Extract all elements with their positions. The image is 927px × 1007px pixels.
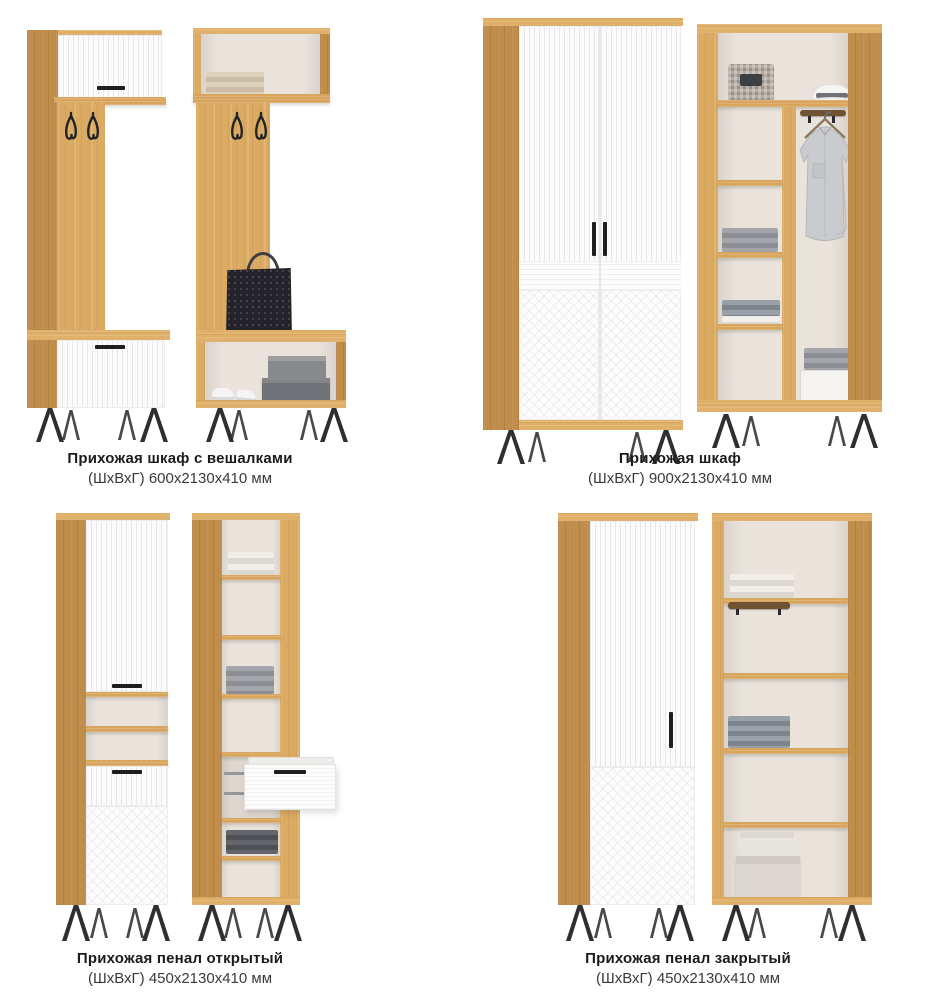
hairpin-leg: [820, 908, 838, 938]
open-niche: [86, 692, 168, 766]
hanging-shirt-illustration: [792, 108, 858, 276]
hanging-rail: [728, 602, 790, 609]
open-shelf-interior: [201, 34, 320, 94]
hairpin-leg: [712, 414, 740, 448]
cabinet-top-edge: [193, 28, 330, 34]
wardrobe-bottom: [697, 400, 882, 412]
storage-box: [740, 832, 794, 858]
hairpin-leg: [722, 905, 750, 941]
product-title: Прихожая шкаф с вешалками: [20, 450, 340, 468]
niche-shelf: [86, 760, 168, 766]
folded-towels: [804, 348, 850, 370]
bench-right-wall: [336, 342, 346, 400]
shelf: [222, 575, 280, 580]
drawer-rail: [224, 792, 250, 795]
sneaker: [212, 388, 234, 400]
product-dimensions: (ШхВхГ) 600х2130х410 мм: [20, 470, 340, 488]
hairpin-leg: [126, 908, 144, 938]
door-pattern-right: [601, 290, 681, 420]
vertical-divider: [782, 107, 796, 400]
shelf: [724, 673, 848, 679]
pulled-out-drawer: [244, 764, 336, 810]
open-drawer-top: [248, 757, 334, 768]
bench-top: [196, 330, 346, 342]
shelf: [222, 818, 280, 823]
hairpin-leg: [274, 905, 302, 941]
bench-interior: [205, 342, 336, 400]
bench-side: [27, 340, 57, 408]
hat-crown: [812, 84, 852, 102]
wicker-basket: [728, 64, 774, 101]
product-card-cabinet-open: Прихожая пенал открытый (ШхВхГ) 450х2130…: [0, 0, 927, 1007]
bench-bottom: [196, 400, 346, 408]
cabinet-left-side: [192, 520, 222, 897]
drawer-handle: [95, 345, 125, 349]
hairpin-leg: [748, 908, 766, 938]
wardrobe-side-panel: [483, 26, 519, 430]
hairpin-leg: [497, 430, 525, 464]
cabinet-right-stile: [280, 520, 300, 905]
cabinet-top-edge: [58, 30, 162, 35]
hairpin-leg: [118, 410, 136, 440]
wardrobe-top-edge: [697, 24, 882, 33]
shelf: [718, 252, 782, 258]
hat-band: [816, 93, 848, 98]
product-dimensions: (ШхВхГ) 450х2130х410 мм: [480, 970, 896, 988]
product-title: Прихожая пенал открытый: [20, 950, 340, 968]
drawer-rail: [224, 772, 250, 775]
product-card-wardrobe: Прихожая шкаф (ШхВхГ) 900х2130х410 мм: [0, 0, 927, 1007]
hairpin-leg: [36, 408, 64, 442]
cabinet-top-edge: [56, 513, 170, 520]
hairpin-leg: [320, 408, 348, 442]
storage-box: [268, 356, 326, 380]
product-dimensions: (ШхВхГ) 450х2130х410 мм: [20, 970, 340, 988]
hairpin-leg: [828, 416, 846, 446]
drawer-cavity: [222, 752, 280, 818]
cabinet-bottom: [192, 897, 300, 905]
canopy-shelf: [54, 97, 166, 105]
cabinet-left-wall: [193, 34, 201, 100]
product-card-wardrobe-with-hooks: Прихожая шкаф с вешалками (ШхВхГ) 600х21…: [0, 0, 927, 1007]
drawer-front: [86, 766, 168, 806]
hairpin-leg: [62, 410, 80, 440]
door-gap: [599, 26, 601, 420]
shelf: [724, 822, 848, 828]
cabinet-side-panel: [27, 30, 58, 102]
cabinet-left-wall: [712, 521, 724, 897]
coat-hook-icon: [62, 110, 80, 148]
panel-side: [27, 102, 57, 335]
bag-handle: [246, 252, 280, 275]
hairpin-leg: [838, 905, 866, 941]
hairpin-leg: [566, 905, 594, 941]
hairpin-leg: [666, 905, 694, 941]
hairpin-leg: [206, 408, 234, 442]
hanging-rod: [800, 110, 846, 116]
coat-panel: [196, 103, 270, 332]
shelf: [724, 748, 848, 754]
white-box: [800, 370, 854, 402]
hairpin-leg: [650, 908, 668, 938]
cabinet-top-edge: [558, 513, 698, 521]
hairpin-leg: [594, 908, 612, 938]
bench-top: [27, 330, 170, 340]
storage-box: [262, 378, 330, 400]
folded-clothes: [722, 228, 778, 252]
shelf: [222, 752, 280, 757]
wardrobe-right-side: [848, 33, 882, 405]
cabinet-top-edge: [192, 513, 300, 520]
basket-label: [740, 74, 762, 86]
hairpin-leg: [140, 408, 168, 442]
hairpin-leg: [850, 414, 878, 448]
door-fluted-upper: [590, 521, 695, 767]
folded-plaid: [206, 72, 264, 94]
canopy-shelf: [193, 94, 330, 103]
shelf: [718, 180, 782, 186]
folded-jeans: [722, 300, 780, 316]
hairpin-leg: [62, 905, 90, 941]
door-handle: [669, 712, 673, 748]
folded-pants: [226, 830, 278, 854]
hat-brim: [806, 97, 860, 108]
shelf: [222, 694, 280, 699]
product-title: Прихожая пенал закрытый: [480, 950, 896, 968]
drawer-handle: [112, 770, 142, 774]
door-handle: [97, 86, 125, 90]
catalog-page: Прихожая шкаф с вешалками (ШхВхГ) 600х21…: [0, 0, 927, 1007]
wardrobe-base: [519, 420, 683, 430]
door-handle: [592, 222, 596, 256]
hairpin-leg: [198, 905, 226, 941]
folded-towels: [228, 552, 274, 575]
hairpin-leg: [528, 432, 546, 462]
top-shelf: [718, 100, 848, 107]
rod-hook: [832, 116, 835, 123]
hairpin-leg: [90, 908, 108, 938]
rail-hook: [736, 609, 739, 615]
storage-box: [736, 856, 800, 897]
wardrobe-door-left: [519, 26, 599, 262]
bench-left-wall: [196, 342, 205, 400]
wardrobe-interior: [718, 33, 848, 400]
door-handle: [603, 222, 607, 256]
coat-hook-icon: [252, 110, 270, 148]
hairpin-leg: [224, 908, 242, 938]
product-card-cabinet-closed: Прихожая пенал закрытый (ШхВхГ) 450х2130…: [0, 0, 927, 1007]
hairpin-leg: [742, 416, 760, 446]
coat-panel: [57, 102, 105, 335]
shelf: [222, 856, 280, 861]
product-title: Прихожая шкаф: [480, 450, 880, 468]
upper-cabinet-door: [58, 35, 162, 100]
cabinet-top-edge: [712, 513, 872, 521]
wardrobe-left-wall: [697, 33, 718, 405]
cabinet-side-panel: [56, 520, 86, 905]
wardrobe-door-right: [601, 26, 681, 262]
product-caption: Прихожая шкаф с вешалками (ШхВхГ) 600х21…: [20, 450, 340, 488]
bench-drawer-front: [57, 340, 165, 408]
product-caption: Прихожая шкаф (ШхВхГ) 900х2130х410 мм: [480, 450, 880, 488]
wardrobe-top-edge: [483, 18, 683, 26]
folded-towel: [722, 316, 780, 324]
hairpin-leg: [230, 410, 248, 440]
shelf: [222, 635, 280, 640]
niche-shelf: [86, 726, 168, 732]
rod-hook: [808, 116, 811, 123]
coat-hook-icon: [84, 110, 102, 148]
lower-door: [86, 806, 168, 905]
drawer-handle: [274, 770, 306, 774]
door-band-right: [601, 262, 681, 290]
cabinet-bottom: [712, 897, 872, 905]
cabinet-interior: [724, 521, 848, 897]
product-caption: Прихожая пенал открытый (ШхВхГ) 450х2130…: [20, 950, 340, 988]
hairpin-leg: [628, 432, 646, 462]
cabinet-right-side: [848, 521, 872, 905]
hairpin-leg: [300, 410, 318, 440]
cabinet-side-panel: [558, 521, 590, 905]
door-handle: [112, 684, 142, 688]
product-caption: Прихожая пенал закрытый (ШхВхГ) 450х2130…: [480, 950, 896, 988]
door-pattern-lower: [590, 767, 695, 905]
cabinet-right-wall: [320, 34, 330, 100]
cabinet-interior: [222, 520, 280, 897]
sneaker: [235, 389, 256, 402]
product-dimensions: (ШхВхГ) 900х2130х410 мм: [480, 470, 880, 488]
shelf: [718, 324, 782, 330]
upper-door: [86, 520, 168, 692]
niche-shelf: [86, 692, 168, 697]
shelf: [724, 598, 848, 604]
rail-hook: [778, 609, 781, 615]
hairpin-leg: [256, 908, 274, 938]
door-band-left: [519, 262, 599, 290]
folded-towels: [730, 574, 794, 598]
shopping-bag: [226, 268, 292, 338]
folded-clothes: [226, 666, 274, 694]
hairpin-leg: [652, 430, 680, 464]
door-pattern-left: [519, 290, 599, 420]
hairpin-leg: [142, 905, 170, 941]
coat-hook-icon: [228, 110, 246, 148]
folded-jeans: [728, 716, 790, 748]
